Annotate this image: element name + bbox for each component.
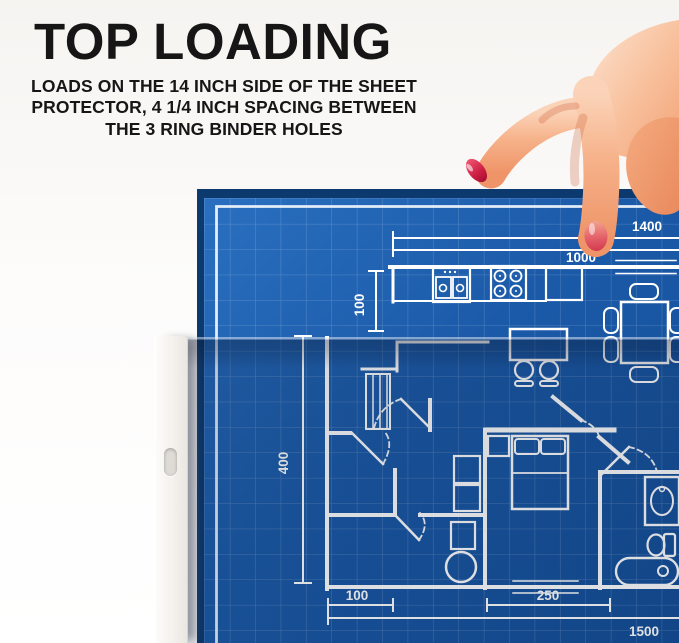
dimension-label-100-vertical: 100 bbox=[352, 294, 367, 317]
dimension-label-1500: 1500 bbox=[629, 624, 659, 639]
blueprint-floor-plan: 1400 1000 100 400 100 250 1500 bbox=[197, 189, 679, 643]
dimension-label-1000: 1000 bbox=[566, 250, 596, 265]
index-nail-highlight bbox=[465, 163, 474, 173]
page-title: TOP LOADING bbox=[34, 16, 448, 67]
sheet-protector-edge bbox=[155, 336, 188, 643]
subtitle-line-3: THE 3 RING BINDER HOLES bbox=[6, 119, 442, 140]
blueprint-grid bbox=[204, 198, 679, 643]
product-image-canvas: TOP LOADING LOADS ON THE 14 INCH SIDE OF… bbox=[0, 0, 679, 643]
finger-shading bbox=[574, 118, 583, 182]
binder-hole bbox=[164, 448, 177, 476]
dimension-label-250: 250 bbox=[537, 588, 560, 603]
subtitle-line-2: PROTECTOR, 4 1/4 INCH SPACING BETWEEN bbox=[6, 97, 442, 118]
index-fingernail bbox=[462, 155, 491, 186]
dimension-label-100-bottom: 100 bbox=[346, 588, 369, 603]
subtitle-line-1: LOADS ON THE 14 INCH SIDE OF THE SHEET bbox=[6, 76, 442, 97]
dimension-label-400: 400 bbox=[276, 452, 291, 475]
dimension-label-1400: 1400 bbox=[632, 219, 662, 234]
palm bbox=[586, 20, 679, 158]
subtitle: LOADS ON THE 14 INCH SIDE OF THE SHEET P… bbox=[6, 76, 442, 140]
knuckle-shading bbox=[542, 106, 576, 120]
index-finger bbox=[491, 112, 584, 173]
headline-block: TOP LOADING LOADS ON THE 14 INCH SIDE OF… bbox=[0, 16, 448, 140]
